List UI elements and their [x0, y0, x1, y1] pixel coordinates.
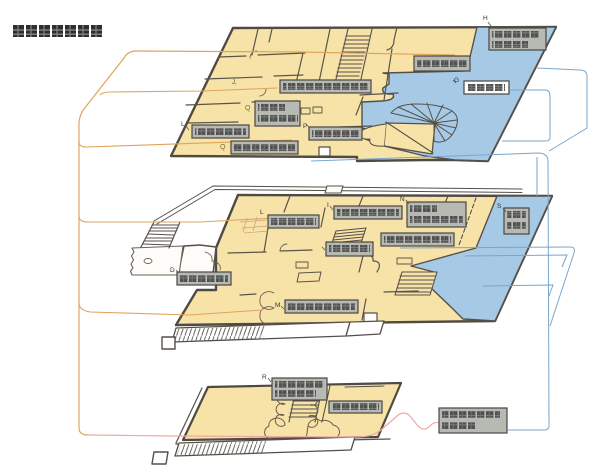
svg-text:R: R [262, 374, 267, 381]
svg-text:G: G [454, 77, 459, 84]
svg-text:Q: Q [245, 105, 251, 112]
svg-text:L: L [181, 121, 185, 128]
svg-text:Q: Q [220, 144, 226, 151]
svg-text:I: I [327, 202, 329, 209]
svg-text:N: N [400, 196, 405, 203]
svg-text:S: S [497, 203, 502, 210]
svg-text:D: D [170, 267, 175, 274]
svg-text:J,: J, [232, 80, 237, 86]
svg-text:H: H [483, 15, 488, 22]
svg-text:M: M [275, 302, 280, 309]
svg-text:P: P [303, 123, 307, 130]
svg-text:L: L [260, 209, 264, 216]
